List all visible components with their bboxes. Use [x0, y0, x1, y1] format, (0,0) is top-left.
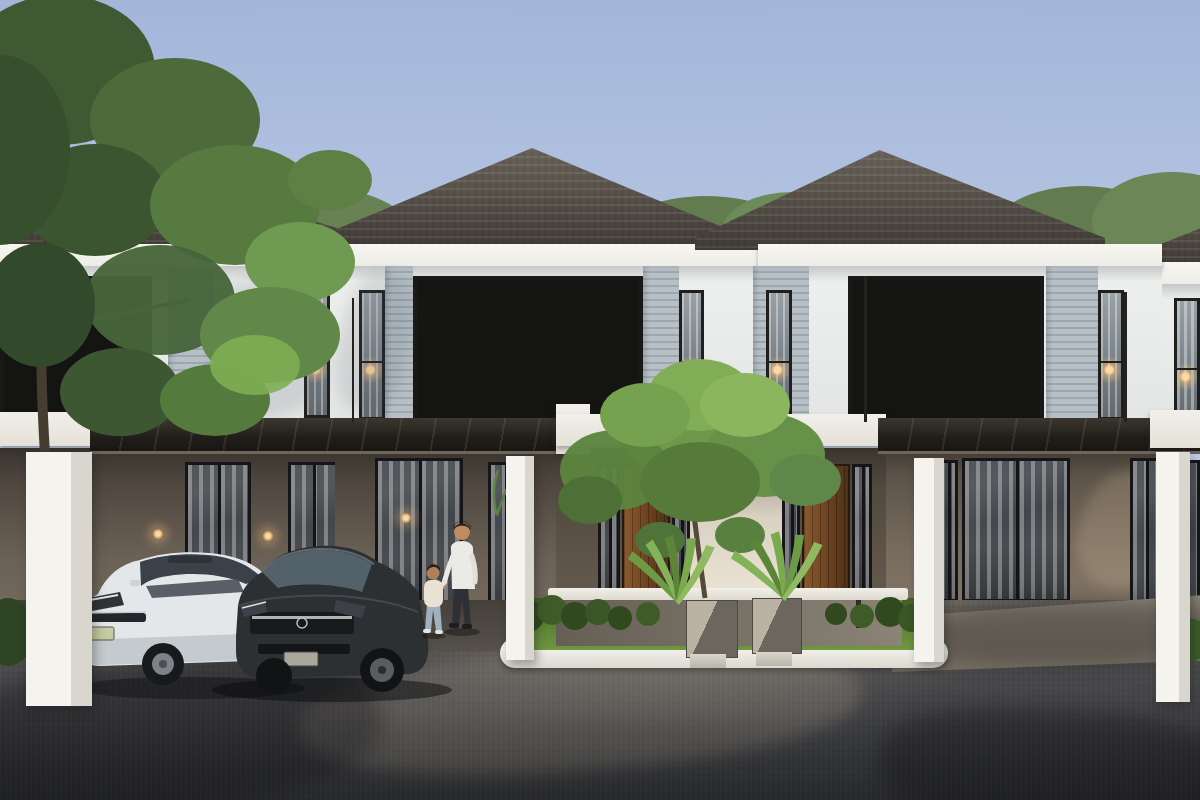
man-walking [440, 521, 480, 636]
carport-pillar [1156, 452, 1190, 702]
carport-pillar [506, 456, 534, 660]
vehicles-and-people [0, 0, 1200, 800]
rendered-scene [0, 0, 1200, 800]
child-walking [422, 564, 446, 639]
carport-pillar [26, 452, 92, 706]
foreground-vignette [0, 710, 1200, 800]
carport-pillar [914, 458, 944, 662]
